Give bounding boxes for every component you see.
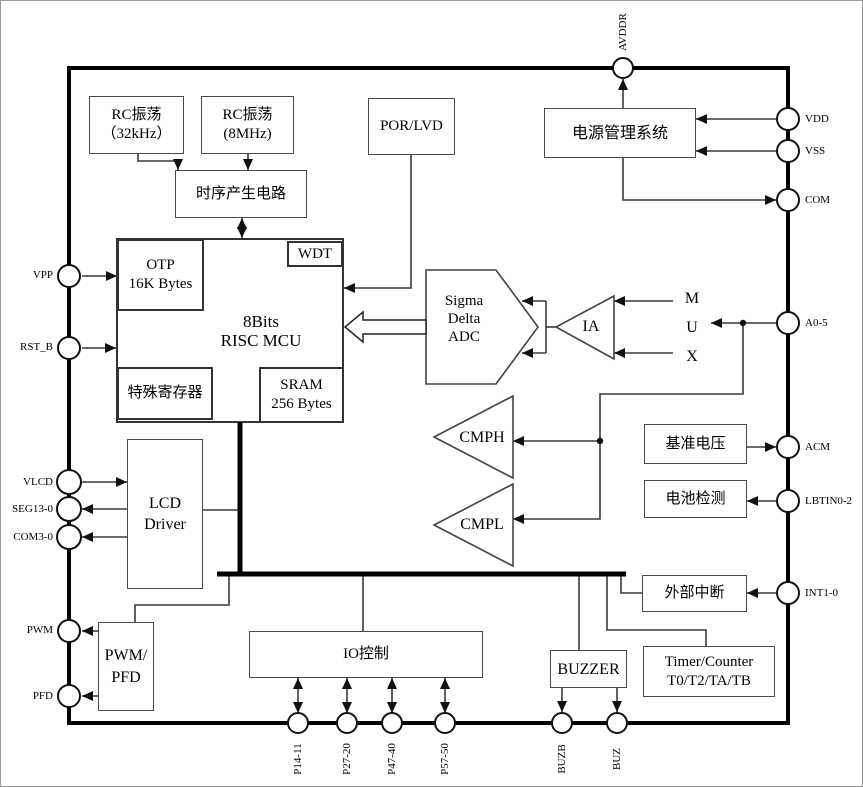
block-sram: SRAM 256 Bytes — [259, 367, 344, 423]
block-io-control: IO控制 — [249, 631, 483, 678]
block-label: Driver — [144, 514, 186, 535]
block-label: IO控制 — [343, 645, 389, 664]
pin-int1-0 — [776, 581, 800, 605]
wire-por-to-mcu — [344, 155, 411, 288]
pin-label-rstb: RST_B — [5, 340, 53, 354]
block-buzzer: BUZZER — [550, 650, 627, 688]
pin-label-acm: ACM — [805, 440, 863, 454]
block-label: Sigma — [414, 292, 514, 310]
block-label: 电池检测 — [665, 490, 725, 509]
block-label: X — [673, 342, 711, 371]
wire-extint-to-bus — [621, 576, 642, 593]
pin-vss — [776, 139, 800, 163]
block-label: 8Bits — [243, 312, 279, 331]
block-timing-generator: 时序产生电路 — [175, 170, 307, 218]
block-label: OTP — [146, 256, 174, 275]
block-label: 外部中断 — [664, 584, 724, 603]
cmpl-label: CMPL — [447, 516, 517, 534]
block-label: Delta — [414, 310, 514, 328]
pin-label-vpp: VPP — [5, 268, 53, 282]
block-label: 基准电压 — [665, 435, 725, 454]
pin-seg13-0 — [56, 496, 82, 522]
pin-vpp — [57, 264, 81, 288]
block-timer-counter: Timer/Counter T0/T2/TA/TB — [643, 646, 775, 697]
pin-label-com: COM — [805, 193, 863, 207]
pin-label-a0-5: A0-5 — [805, 316, 863, 330]
block-rc-osc-32k: RC振荡 （32kHz） — [89, 96, 184, 154]
block-label: T0/T2/TA/TB — [667, 672, 751, 691]
block-label: M — [673, 284, 711, 313]
block-label: BUZZER — [557, 660, 619, 679]
pin-acm — [776, 435, 800, 459]
block-label: SRAM — [280, 376, 323, 395]
adc-label: Sigma Delta ADC — [414, 292, 514, 346]
pin-label-vdd: VDD — [805, 112, 863, 126]
block-label: 电源管理系统 — [572, 124, 668, 143]
block-label: CMPL — [447, 516, 517, 534]
pin-label-buz: BUZ — [610, 733, 624, 785]
mux-label: M U X — [673, 284, 711, 371]
pin-pwm — [57, 619, 81, 643]
mcu-block-diagram: RC振荡 （32kHz） RC振荡 (8MHz) 时序产生电路 POR/LVD … — [0, 0, 863, 787]
block-otp: OTP 16K Bytes — [117, 239, 204, 311]
block-pwm-pfd: PWM/ PFD — [98, 622, 154, 711]
block-label: ADC — [414, 328, 514, 346]
pin-label-avddr: AVDDR — [616, 6, 630, 58]
junction-dot — [740, 320, 746, 326]
block-label: CMPH — [447, 429, 517, 447]
block-rc-osc-8m: RC振荡 (8MHz) — [201, 96, 294, 154]
pin-com3-0 — [56, 524, 82, 550]
pin-label-p14-11: P14-11 — [291, 733, 305, 785]
pin-p57-50 — [434, 712, 456, 734]
block-label: PFD — [111, 667, 140, 689]
pin-label-p57-50: P57-50 — [438, 733, 452, 785]
pin-label-pfd: PFD — [5, 689, 53, 703]
ia-label: IA — [566, 318, 616, 336]
block-por-lvd: POR/LVD — [368, 98, 455, 155]
block-label: RISC MCU — [221, 331, 302, 350]
pin-label-vss: VSS — [805, 144, 863, 158]
block-label: 特殊寄存器 — [127, 384, 202, 403]
pin-label-seg13-0: SEG13-0 — [5, 502, 53, 516]
block-label: U — [673, 313, 711, 342]
pin-buzb — [551, 712, 573, 734]
pin-label-buzb: BUZB — [555, 733, 569, 785]
junction-dot — [597, 438, 603, 444]
pin-avddr — [612, 57, 634, 79]
pin-rstb — [57, 336, 81, 360]
block-lcd-driver: LCD Driver — [127, 439, 203, 589]
block-label: 256 Bytes — [271, 395, 331, 414]
wire-rc32k-to-timing — [138, 154, 178, 170]
block-label: RC振荡 — [111, 106, 161, 125]
pin-vlcd — [56, 469, 82, 495]
pin-p27-20 — [336, 712, 358, 734]
block-label: PWM/ — [105, 645, 148, 667]
block-label: LCD — [149, 493, 181, 514]
pin-pfd — [57, 684, 81, 708]
pin-label-lbtin0-2: LBTIN0-2 — [805, 494, 863, 508]
pin-p47-40 — [381, 712, 403, 734]
block-external-interrupt: 外部中断 — [642, 575, 747, 612]
block-label: RC振荡 — [222, 106, 272, 125]
pin-label-com3-0: COM3-0 — [5, 530, 53, 544]
pin-com — [776, 188, 800, 212]
block-label: 时序产生电路 — [196, 185, 286, 204]
block-label: 16K Bytes — [129, 275, 193, 294]
block-wdt: WDT — [287, 241, 343, 267]
block-label: POR/LVD — [380, 117, 443, 136]
pin-a0-5 — [776, 311, 800, 335]
pin-p14-11 — [287, 712, 309, 734]
block-label: IA — [566, 318, 616, 336]
pin-lbtin0-2 — [776, 489, 800, 513]
block-label: （32kHz） — [102, 125, 172, 144]
block-power-management: 电源管理系统 — [544, 108, 696, 158]
pin-label-int1-0: INT1-0 — [805, 586, 863, 600]
pin-label-p27-20: P27-20 — [340, 733, 354, 785]
block-label: Timer/Counter — [665, 653, 754, 672]
pin-vdd — [776, 107, 800, 131]
block-battery-detect: 电池检测 — [644, 480, 747, 518]
pin-buz — [606, 712, 628, 734]
cmph-label: CMPH — [447, 429, 517, 447]
block-vref: 基准电压 — [644, 424, 747, 464]
block-label: (8MHz) — [223, 125, 271, 144]
wire-pmu-to-com — [623, 158, 776, 200]
block-label: WDT — [298, 245, 332, 264]
pin-label-pwm: PWM — [5, 623, 53, 637]
pin-label-p47-40: P47-40 — [385, 733, 399, 785]
block-special-registers: 特殊寄存器 — [117, 367, 213, 420]
pin-label-vlcd: VLCD — [5, 475, 53, 489]
